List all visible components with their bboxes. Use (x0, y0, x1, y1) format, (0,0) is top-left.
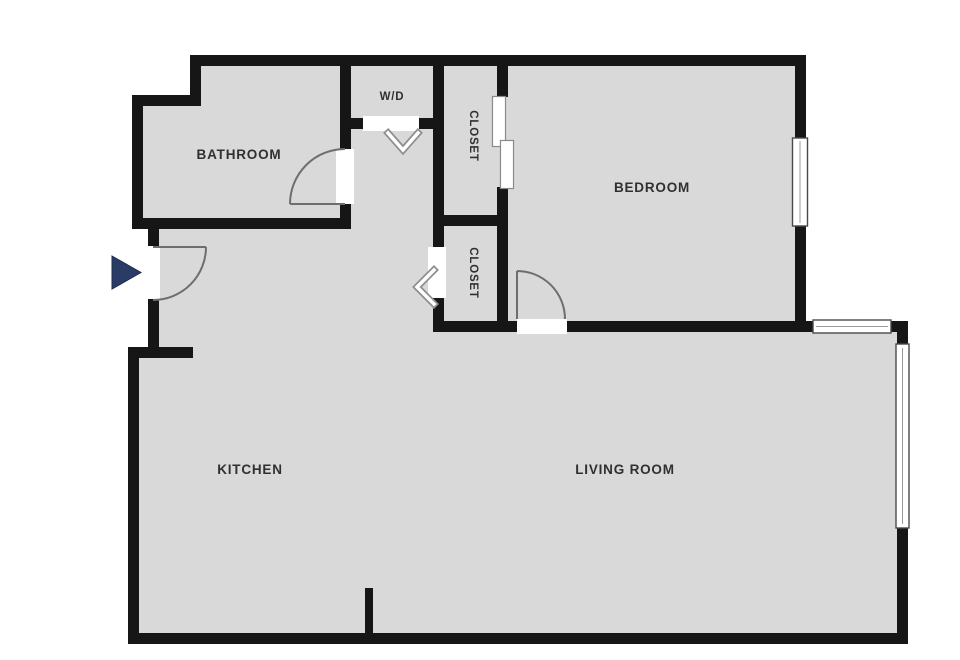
floor-plan-page: BATHROOM W/D CLOSET CLOSET BEDROOM KITCH… (0, 0, 960, 660)
room-label-wd: W/D (380, 91, 405, 103)
wall-bathroom-right-lower (340, 203, 351, 229)
room-label-kitchen: KITCHEN (217, 462, 283, 477)
wall-entry-stub-upper (148, 223, 159, 247)
wall-livingroom-top-right (567, 321, 813, 332)
room-label-living-room: LIVING ROOM (575, 462, 675, 477)
wall-bedroom-right-lower (795, 226, 806, 332)
wall-bottom (128, 633, 908, 644)
sliding-panel-front (501, 141, 514, 189)
bedroom-window (793, 138, 808, 226)
floor-plan: BATHROOM W/D CLOSET CLOSET BEDROOM KITCH… (0, 0, 960, 660)
wall-kitchen-divider-stub (365, 588, 373, 633)
wall-bathroom-right-upper (340, 55, 351, 150)
room-label-closet-upper: CLOSET (467, 110, 479, 161)
wall-closet-mid (433, 215, 508, 226)
wall-bedroom-left-lower (497, 187, 508, 321)
wd-door-opening (363, 116, 419, 131)
wall-wd-bottom-left (340, 118, 363, 129)
bathroom-door-sill (336, 149, 354, 204)
wall-livingroom-right-upper (897, 321, 908, 344)
living-room-right-window (896, 344, 909, 528)
wall-livingroom-right-lower (897, 528, 908, 644)
wall-kitchen-left (128, 347, 139, 644)
wall-bedroom-left-upper (497, 55, 508, 97)
wall-bathroom-left (132, 95, 143, 229)
room-label-bathroom: BATHROOM (197, 147, 282, 162)
entry-arrow-icon (112, 256, 141, 289)
room-label-closet-lower: CLOSET (467, 247, 479, 298)
bedroom-door-sill (517, 319, 567, 334)
living-room-top-window (813, 320, 891, 333)
wall-entry-stub-lower (148, 298, 159, 349)
wall-bathroom-bottom (132, 218, 351, 229)
wall-livingroom-top-left (433, 321, 517, 332)
wall-bedroom-right-upper (795, 55, 806, 138)
wall-wd-bottom-right (419, 118, 434, 129)
floor-footprint (128, 55, 908, 644)
room-label-bedroom: BEDROOM (614, 180, 690, 195)
sliding-panel-back (493, 97, 506, 147)
entry-door-opening (147, 246, 160, 299)
